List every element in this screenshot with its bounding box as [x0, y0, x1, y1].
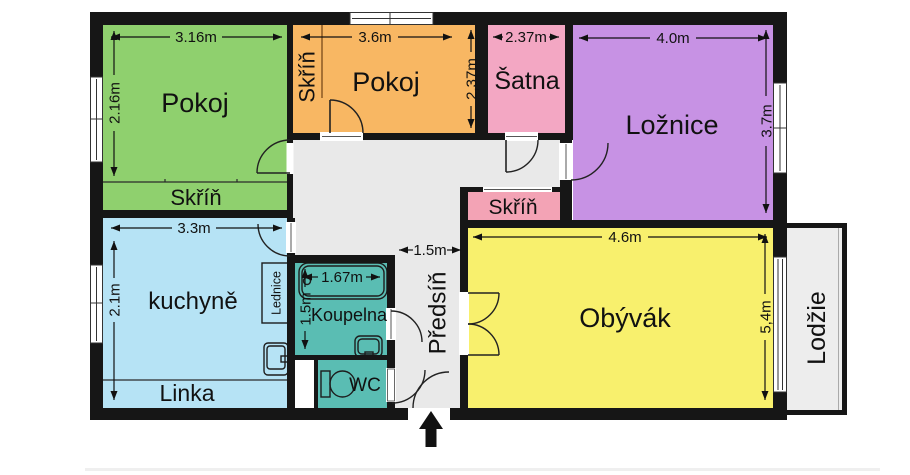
wall [565, 25, 573, 140]
svg-text:2,37m: 2,37m [463, 58, 480, 100]
label-loznice: Ložnice [625, 110, 718, 140]
svg-text:3.6m: 3.6m [358, 29, 391, 46]
svg-text:4.0m: 4.0m [656, 30, 689, 47]
label-pokoj-left: Pokoj [161, 88, 229, 118]
loggia-wall [787, 223, 847, 228]
svg-text:3.3m: 3.3m [177, 220, 210, 237]
wall [460, 220, 787, 228]
svg-text:2.16m: 2.16m [106, 82, 123, 124]
label-fridge: Lednice [269, 271, 283, 315]
label-closet-left: Skříň [170, 185, 221, 210]
wall [293, 355, 387, 360]
window [350, 13, 433, 25]
window [91, 77, 103, 162]
loggia-wall [842, 223, 847, 415]
floor-plan-drawing: 3.16m 2.16m 3.6m 2,37m 2.37m 4.0m 3.7m 3… [0, 0, 910, 475]
svg-text:3.7m: 3.7m [758, 104, 775, 137]
window [91, 265, 103, 343]
wall [293, 255, 395, 263]
label-hall-closet: Skříň [488, 196, 537, 219]
wall [103, 210, 293, 218]
balcony-window [774, 257, 787, 392]
wall [90, 12, 103, 420]
wall [90, 12, 787, 25]
svg-text:1.67m: 1.67m [321, 269, 363, 286]
label-predsin: Předsíň [424, 272, 451, 355]
label-koupelna: Koupelna [311, 305, 388, 325]
label-satna: Šatna [494, 66, 559, 95]
svg-text:5,4m: 5,4m [757, 300, 774, 333]
svg-text:1.5m: 1.5m [413, 242, 446, 259]
label-counter: Linka [160, 380, 215, 406]
label-wc: WC [349, 375, 381, 396]
window [774, 83, 787, 173]
wall [287, 25, 293, 210]
shaft [295, 360, 314, 408]
bottom-edge-artifact [85, 468, 880, 471]
svg-text:2.37m: 2.37m [505, 29, 547, 46]
label-pokoj-top: Pokoj [352, 67, 420, 97]
svg-text:4.6m: 4.6m [608, 229, 641, 246]
door-opening [459, 292, 469, 355]
door-opening [287, 143, 294, 174]
label-lodzie: Lodžie [803, 291, 831, 365]
svg-text:3.16m: 3.16m [175, 29, 217, 46]
svg-text:2.1m: 2.1m [106, 283, 123, 316]
label-obyvak: Obývák [579, 303, 671, 333]
door-leaf-closed [388, 369, 395, 401]
label-closet-top: Skříň [295, 51, 320, 102]
label-kuchyne: kuchyně [148, 288, 237, 315]
wall [314, 360, 318, 408]
floor-plan: 3.16m 2.16m 3.6m 2,37m 2.37m 4.0m 3.7m 3… [0, 0, 910, 475]
loggia-wall [787, 410, 847, 415]
